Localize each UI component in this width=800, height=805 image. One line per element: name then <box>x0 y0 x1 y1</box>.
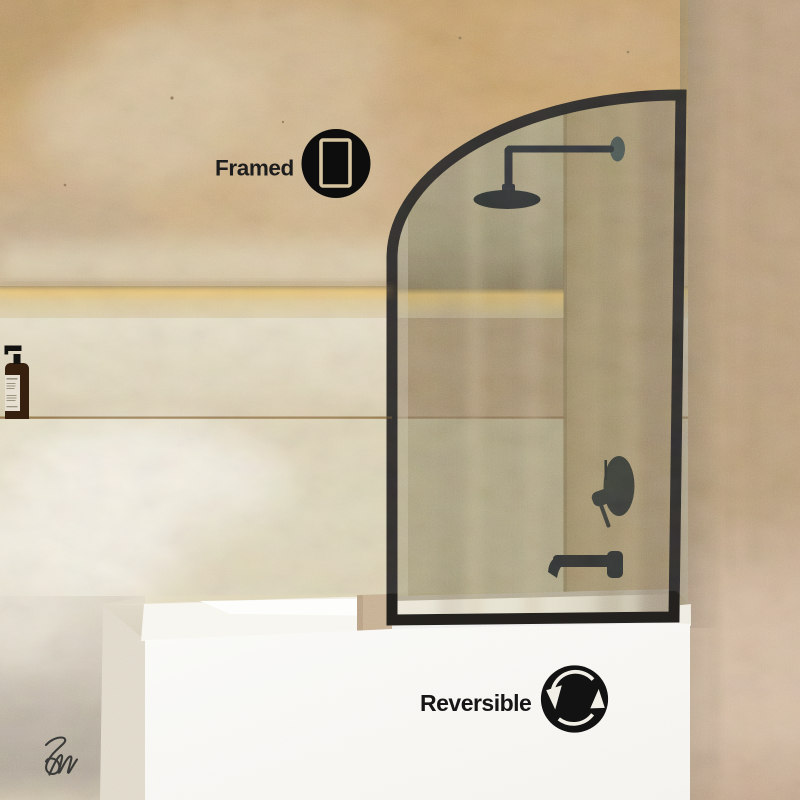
svg-text:Reversible: Reversible <box>420 690 531 716</box>
svg-text:Framed: Framed <box>215 156 294 181</box>
